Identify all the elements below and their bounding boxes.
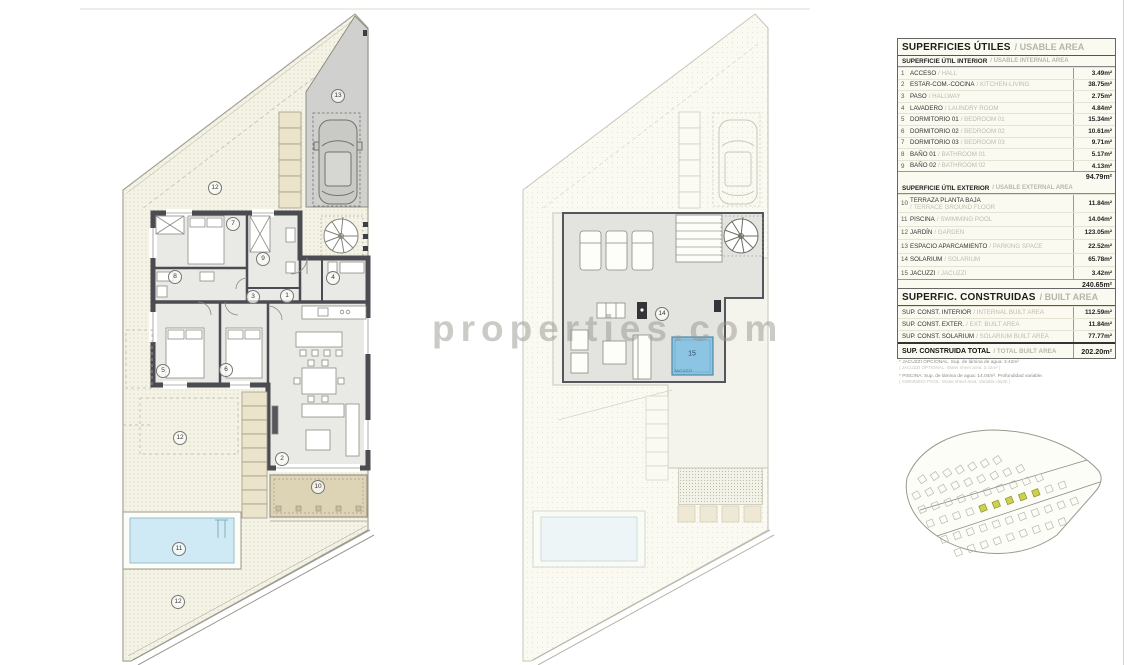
car-icon-faded [719,120,757,204]
table-row: 11PISCINA/ SWIMMING POOL14.04m² [898,212,1115,225]
table-row: SUP. CONST. EXTER./ EXT. BUILT AREA11.84… [898,318,1115,330]
table-row: 5DORMITORIO 01/ BEDROOM 0115.34m² [898,113,1115,125]
table-row: SUP. CONST. INTERIOR/ INTERNAL BUILT ARE… [898,306,1115,318]
table-row: 1ACCESO/ HALL3.49m² [898,67,1115,79]
room-label-garden-2: 12 [173,431,187,445]
room-label-bathroom1: 8 [168,270,182,284]
table-row: 8BAÑO 01/ BATHROOM 015.17m² [898,148,1115,160]
built-table-title: SUPERFIC. CONSTRUIDAS/ BUILT AREA [898,289,1115,306]
table-row: 13ESPACIO APARCAMIENTO/ PARKING SPACE22.… [898,239,1115,252]
table-row: 15JACUZZI/ JACUZZI3.42m² [898,266,1115,279]
room-label-bathroom2: 9 [256,252,270,266]
jacuzzi-caption: JACUZZI [674,368,693,373]
table-row: 9BAÑO 02/ BATHROOM 024.13m² [898,160,1115,172]
exterior-steps-top-faded [679,112,700,208]
room-label-bedroom3: 7 [226,217,240,231]
usable-area-table: SUPERFICIES ÚTILES/ USABLE AREA SUPERFIC… [897,38,1116,308]
room-label-garden-1: 12 [208,181,222,195]
room-label-pool: 11 [172,542,186,556]
room-label-bedroom1: 5 [156,364,170,378]
table-row: 10TERRAZA PLANTA BAJA/ TERRACE GROUND FL… [898,194,1115,212]
room-label-parking: 13 [331,89,345,103]
table-row: 7DORMITORIO 03/ BEDROOM 039.71m² [898,137,1115,149]
table-row: 12JARDÍN/ GARDEN123.05m² [898,226,1115,239]
footnote-2-en: ( SWIMMING POOL: Water sheet area. Varia… [899,379,1114,384]
table-row: 6DORMITORIO 02/ BEDROOM 0210.61m² [898,125,1115,137]
spiral-stair [321,216,363,256]
deck-steps [676,215,722,262]
usable-table-title: SUPERFICIES ÚTILES/ USABLE AREA [898,39,1115,56]
room-label-garden-3: 12 [171,595,185,609]
floor-plan-sheet: { "watermark": "properties.com", "labels… [0,0,1130,665]
swimming-pool [123,512,241,569]
site-location-map [906,430,1101,556]
table-row: 2ESTAR-COM.-COCINA/ KITCHEN-LIVING38.75m… [898,79,1115,91]
car-icon [314,120,362,204]
footnote-1-en: ( JACUZZI OPTIONAL. Water sheet area: 3.… [899,365,1114,370]
exterior-subheader: SUPERFICIE ÚTIL EXTERIOR/ USABLE EXTERNA… [898,183,1115,194]
footnotes: * JACUZZI OPCIONAL. Sup. de lámina de ag… [899,356,1114,384]
exterior-steps-mid [242,392,267,518]
table-row: 4LAVADERO/ LAUNDRY ROOM4.84m² [898,102,1115,114]
table-row: 3PASO/ HALLWAY2.75m² [898,90,1115,102]
interior-subtotal: 94.79m² [898,171,1115,183]
table-row: SUP. CONST. SOLARIUM/ SOLARIUM BUILT ARE… [898,330,1115,342]
room-label-living: 2 [275,452,289,466]
sun-loungers [580,231,653,270]
parking-area-faded [713,113,760,206]
room-label-terrace: 10 [311,480,325,494]
room-label-jacuzzi-number: 15 [688,351,696,358]
interior-subheader: SUPERFICIE ÚTIL INTERIOR/ USABLE INTERNA… [898,56,1115,67]
room-label-hall: 1 [280,289,294,303]
table-row: 14SOLARIUM/ SOLARIUM65.78m² [898,253,1115,266]
room-label-laundry: 4 [326,271,340,285]
ground-floor-plan [123,14,374,665]
built-area-table: SUPERFIC. CONSTRUIDAS/ BUILT AREA SUP. C… [897,288,1116,359]
room-label-hallway: 3 [246,290,260,304]
watermark: properties.com [432,308,783,350]
room-label-bedroom2: 6 [219,363,233,377]
